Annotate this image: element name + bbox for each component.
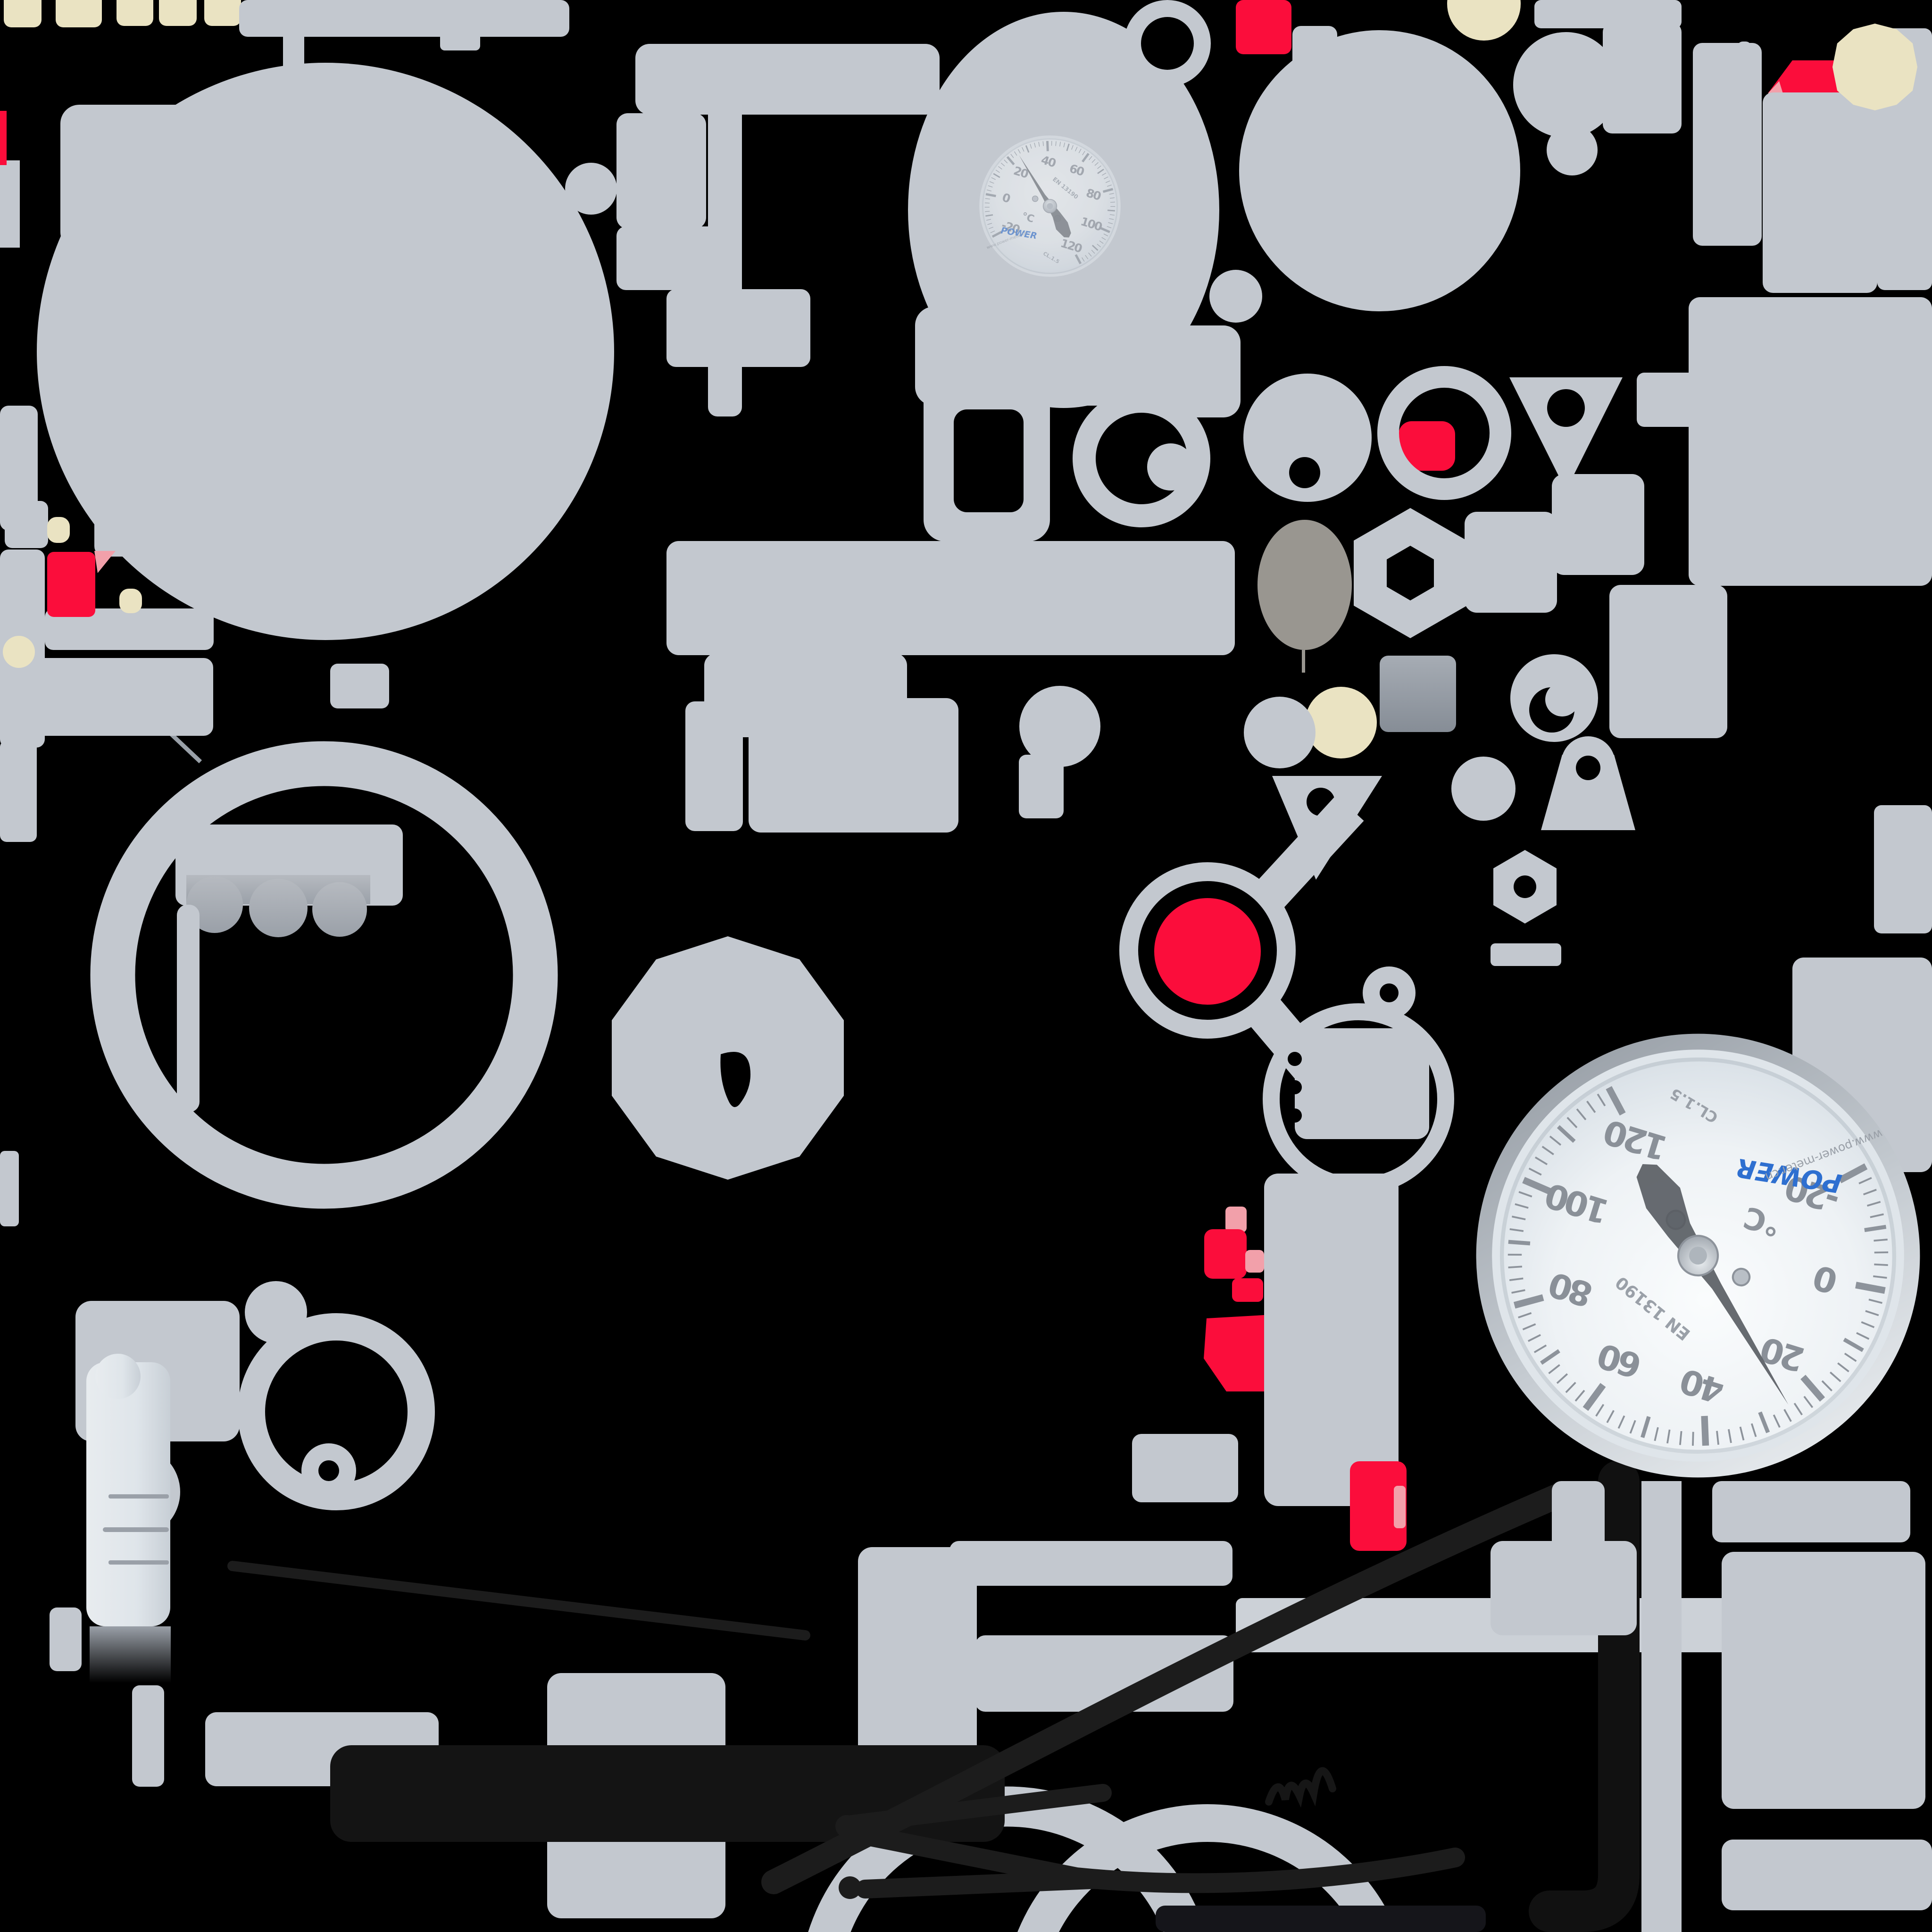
mask-tab	[50, 1607, 82, 1671]
cream-blob	[47, 517, 70, 543]
mask-edge-strip	[1874, 805, 1932, 933]
mask-dot	[1209, 270, 1262, 323]
cream-tab	[56, 0, 102, 27]
texture-atlas-canvas: -20020406080100120EN 13190°CPOWERwww.pow…	[0, 0, 1932, 1932]
mask-bar-wide	[635, 44, 940, 115]
flag-cloud	[249, 879, 308, 937]
flag-pole	[177, 905, 200, 1112]
thermowell-bottle	[86, 1354, 171, 1683]
atlas-svg: -20020406080100120EN 13190°CPOWERwww.pow…	[0, 0, 1932, 1932]
mask-dot	[1244, 697, 1316, 768]
mask-card-notch	[1288, 1052, 1302, 1066]
mask-slab-right	[1689, 297, 1932, 586]
mask-disc-hole	[1380, 983, 1399, 1002]
cream-tab	[117, 0, 153, 26]
mask-disc-hole	[1289, 457, 1320, 488]
metal-plate	[1380, 656, 1456, 732]
cream-blob	[119, 589, 142, 613]
mask-edge-strip	[0, 160, 20, 248]
bottle-cap	[95, 1354, 141, 1399]
mask-bell-hole	[1576, 756, 1600, 780]
cream-dot	[1305, 687, 1377, 758]
mask-tab	[1019, 755, 1064, 818]
mask-step-rect	[616, 226, 734, 290]
mask-bar	[132, 1685, 164, 1787]
gauge-tick	[1874, 1265, 1888, 1265]
mask-dot	[1451, 757, 1516, 821]
cream-tab	[159, 0, 197, 26]
mask-dot	[565, 163, 617, 215]
mask-pin	[1737, 42, 1751, 108]
red-circle	[1154, 898, 1261, 1005]
mask-crescent	[1147, 443, 1194, 491]
red-blob	[1232, 1278, 1263, 1302]
red-square	[47, 552, 95, 617]
mask-disc-hole	[318, 1460, 339, 1481]
mask-step-rect	[666, 289, 810, 367]
bottle-shadow	[90, 1626, 171, 1683]
gauge-tick	[1508, 1242, 1530, 1243]
mask-clip-crescent	[1545, 683, 1579, 716]
dark-rod	[865, 1879, 1103, 1889]
mask-bar	[1722, 1840, 1932, 1910]
mask-triangle-hole	[1547, 389, 1585, 427]
mask-square-ring-hole	[954, 409, 1024, 512]
mask-card	[1295, 1028, 1429, 1139]
mask-rect	[94, 494, 212, 557]
mask-bar	[685, 701, 743, 831]
mask-slab-center	[666, 541, 1235, 655]
mask-rect	[5, 501, 48, 548]
mask-slab	[749, 698, 958, 833]
mask-slab	[1609, 585, 1727, 738]
gauge-tick	[1874, 1252, 1888, 1253]
mask-step-rect	[616, 113, 706, 229]
flag-clouds	[186, 875, 370, 937]
taupe-stem	[1302, 650, 1305, 673]
mask-slab-topleft	[60, 105, 365, 251]
mask-rect	[1603, 23, 1682, 133]
bottle-ridge	[103, 1527, 169, 1532]
mask-tab	[330, 664, 389, 708]
mask-rect	[1132, 1434, 1238, 1502]
mask-rect-tall	[1693, 43, 1762, 246]
flag-cloud	[312, 882, 367, 937]
gauge-tick	[1508, 1266, 1522, 1267]
cream-polygon-disc	[1832, 24, 1917, 110]
pink-blob	[1225, 1207, 1247, 1232]
mask-card-notch	[1288, 1080, 1302, 1094]
mask-donut-hole	[1141, 17, 1194, 70]
mask-column	[1641, 1481, 1682, 1932]
dark-rod-end	[835, 1815, 858, 1838]
mask-column	[1264, 1174, 1399, 1506]
mask-bar-top	[239, 0, 569, 37]
mask-card-notch	[1288, 1108, 1302, 1123]
dark-rod-end	[839, 1876, 861, 1899]
mask-slab	[1763, 92, 1877, 293]
cream-tab	[204, 0, 241, 26]
taupe-ellipse	[1257, 520, 1352, 650]
mask-slab	[1722, 1552, 1925, 1809]
shadow-bar	[1156, 1906, 1486, 1932]
cream-tab	[4, 0, 42, 27]
pink-strip	[1394, 1486, 1406, 1528]
mask-bar	[949, 1541, 1232, 1586]
mask-bar	[1712, 1481, 1910, 1542]
mask-bar-small	[1491, 943, 1561, 966]
mask-dot	[1547, 125, 1598, 175]
mask-square-top	[440, 0, 480, 50]
bottle-ridge	[108, 1560, 169, 1565]
mask-circle-large-top	[1239, 30, 1520, 311]
bottle-ridge	[108, 1494, 169, 1499]
mask-edge-strip	[0, 1151, 19, 1226]
mask-edge-strip	[0, 741, 37, 842]
mask-hex-small-hole	[1514, 875, 1536, 898]
gauge-tick	[1874, 1240, 1887, 1241]
red-accent-top	[1236, 0, 1291, 54]
mask-rounded-square	[1465, 512, 1557, 613]
gauge-tick	[1693, 1432, 1693, 1446]
red-edge-strip	[0, 111, 7, 165]
mask-rounded-square	[1552, 474, 1644, 575]
pink-blob	[1245, 1250, 1264, 1273]
mask-rect	[1491, 1541, 1637, 1635]
mask-dot	[245, 1281, 307, 1343]
cream-dot	[3, 636, 35, 668]
red-blob	[1204, 1229, 1247, 1279]
gauge-tick	[1705, 1416, 1706, 1446]
mask-slab	[0, 658, 213, 736]
